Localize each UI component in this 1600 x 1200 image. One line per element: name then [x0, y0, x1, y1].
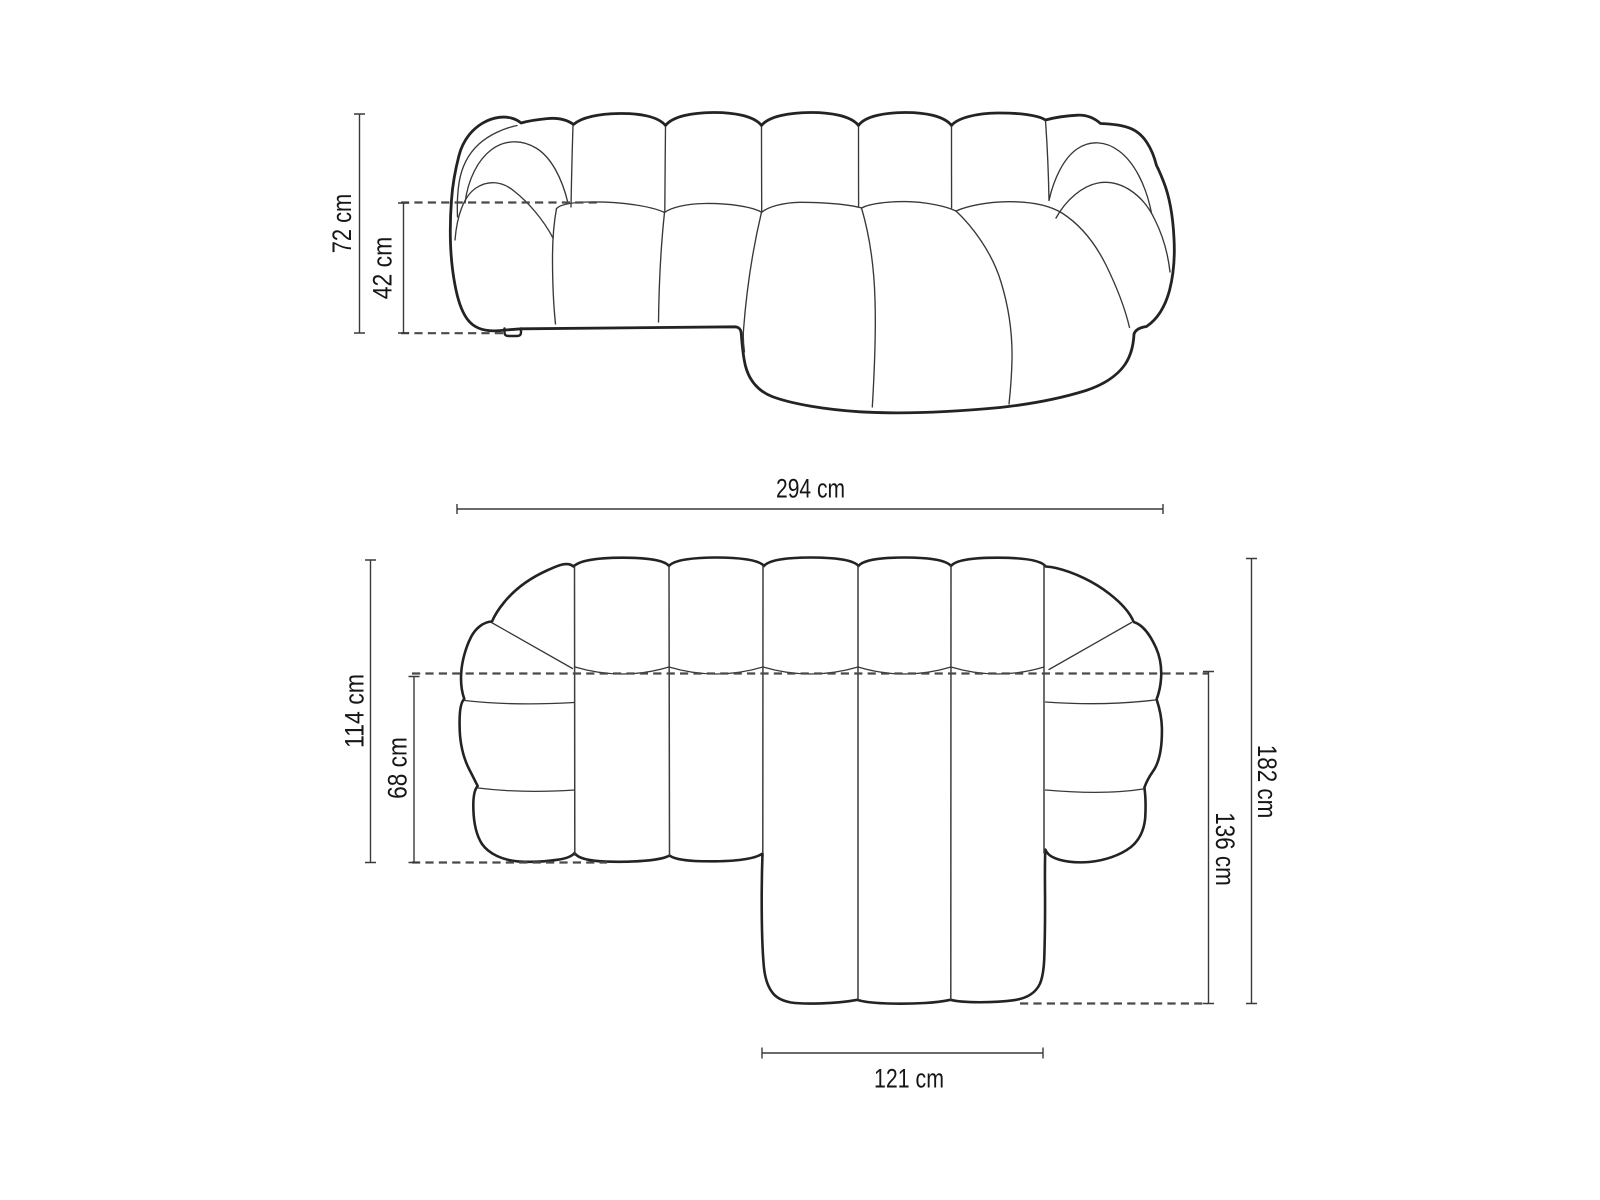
- svg-text:72 cm: 72 cm: [328, 194, 358, 254]
- svg-text:121 cm: 121 cm: [874, 1064, 944, 1094]
- svg-text:42 cm: 42 cm: [368, 237, 398, 299]
- svg-text:136 cm: 136 cm: [1209, 812, 1238, 885]
- svg-text:114 cm: 114 cm: [340, 674, 370, 748]
- svg-text:294 cm: 294 cm: [776, 474, 845, 504]
- svg-text:68 cm: 68 cm: [383, 737, 413, 799]
- svg-text:182 cm: 182 cm: [1251, 745, 1280, 818]
